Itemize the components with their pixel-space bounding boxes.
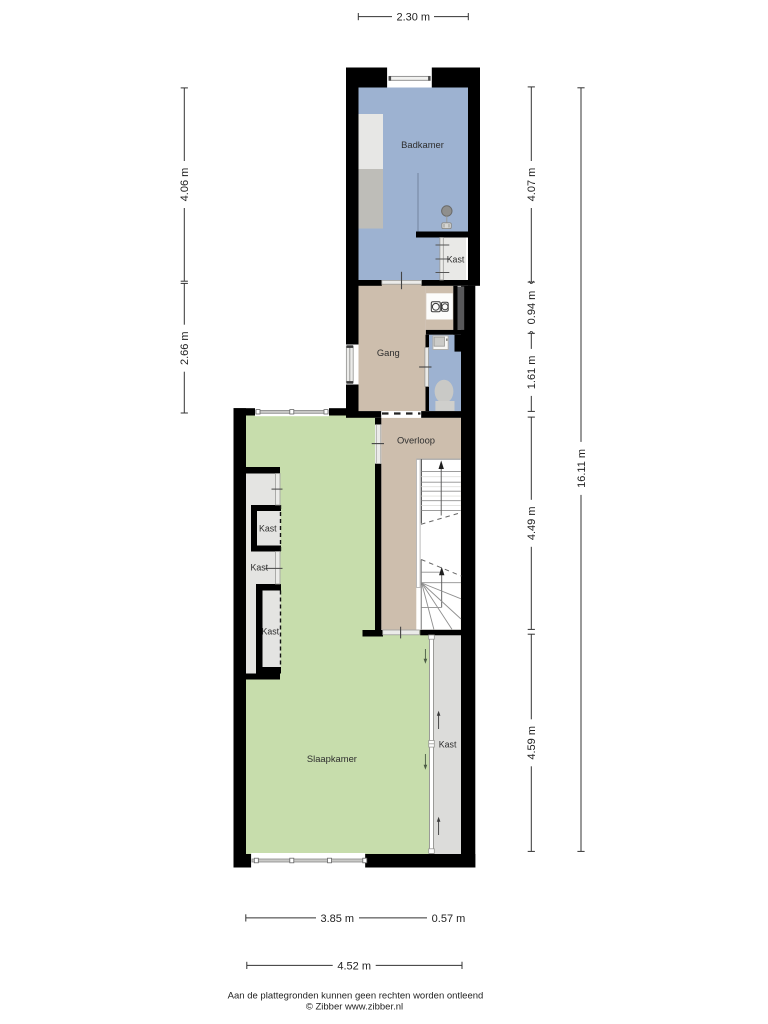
svg-text:Slaapkamer: Slaapkamer bbox=[307, 753, 357, 764]
svg-text:Kast: Kast bbox=[259, 524, 277, 534]
svg-text:Kast: Kast bbox=[439, 740, 457, 750]
svg-text:2.30 m: 2.30 m bbox=[396, 12, 430, 24]
svg-text:Overloop: Overloop bbox=[397, 435, 435, 446]
svg-text:Kast: Kast bbox=[250, 563, 268, 573]
svg-text:Kast: Kast bbox=[261, 626, 279, 636]
svg-text:4.06 m: 4.06 m bbox=[179, 168, 191, 202]
svg-text:Kast: Kast bbox=[447, 254, 465, 264]
svg-text:4.52 m: 4.52 m bbox=[337, 960, 371, 972]
svg-text:4.59 m: 4.59 m bbox=[526, 726, 538, 760]
svg-text:4.49 m: 4.49 m bbox=[526, 506, 538, 540]
svg-text:0.57 m: 0.57 m bbox=[432, 913, 466, 925]
svg-text:1.61 m: 1.61 m bbox=[526, 356, 538, 390]
svg-text:Gang: Gang bbox=[377, 347, 400, 358]
svg-text:0.94 m: 0.94 m bbox=[526, 291, 538, 325]
svg-text:Badkamer: Badkamer bbox=[401, 139, 444, 150]
svg-text:3.85 m: 3.85 m bbox=[320, 913, 354, 925]
svg-text:2.66 m: 2.66 m bbox=[179, 331, 191, 365]
svg-text:4.07 m: 4.07 m bbox=[526, 168, 538, 202]
svg-text:16.11 m: 16.11 m bbox=[576, 449, 588, 488]
svg-text:© Zibber www.zibber.nl: © Zibber www.zibber.nl bbox=[306, 1001, 403, 1012]
svg-text:Aan de plattegronden kunnen ge: Aan de plattegronden kunnen geen rechten… bbox=[228, 990, 484, 1001]
